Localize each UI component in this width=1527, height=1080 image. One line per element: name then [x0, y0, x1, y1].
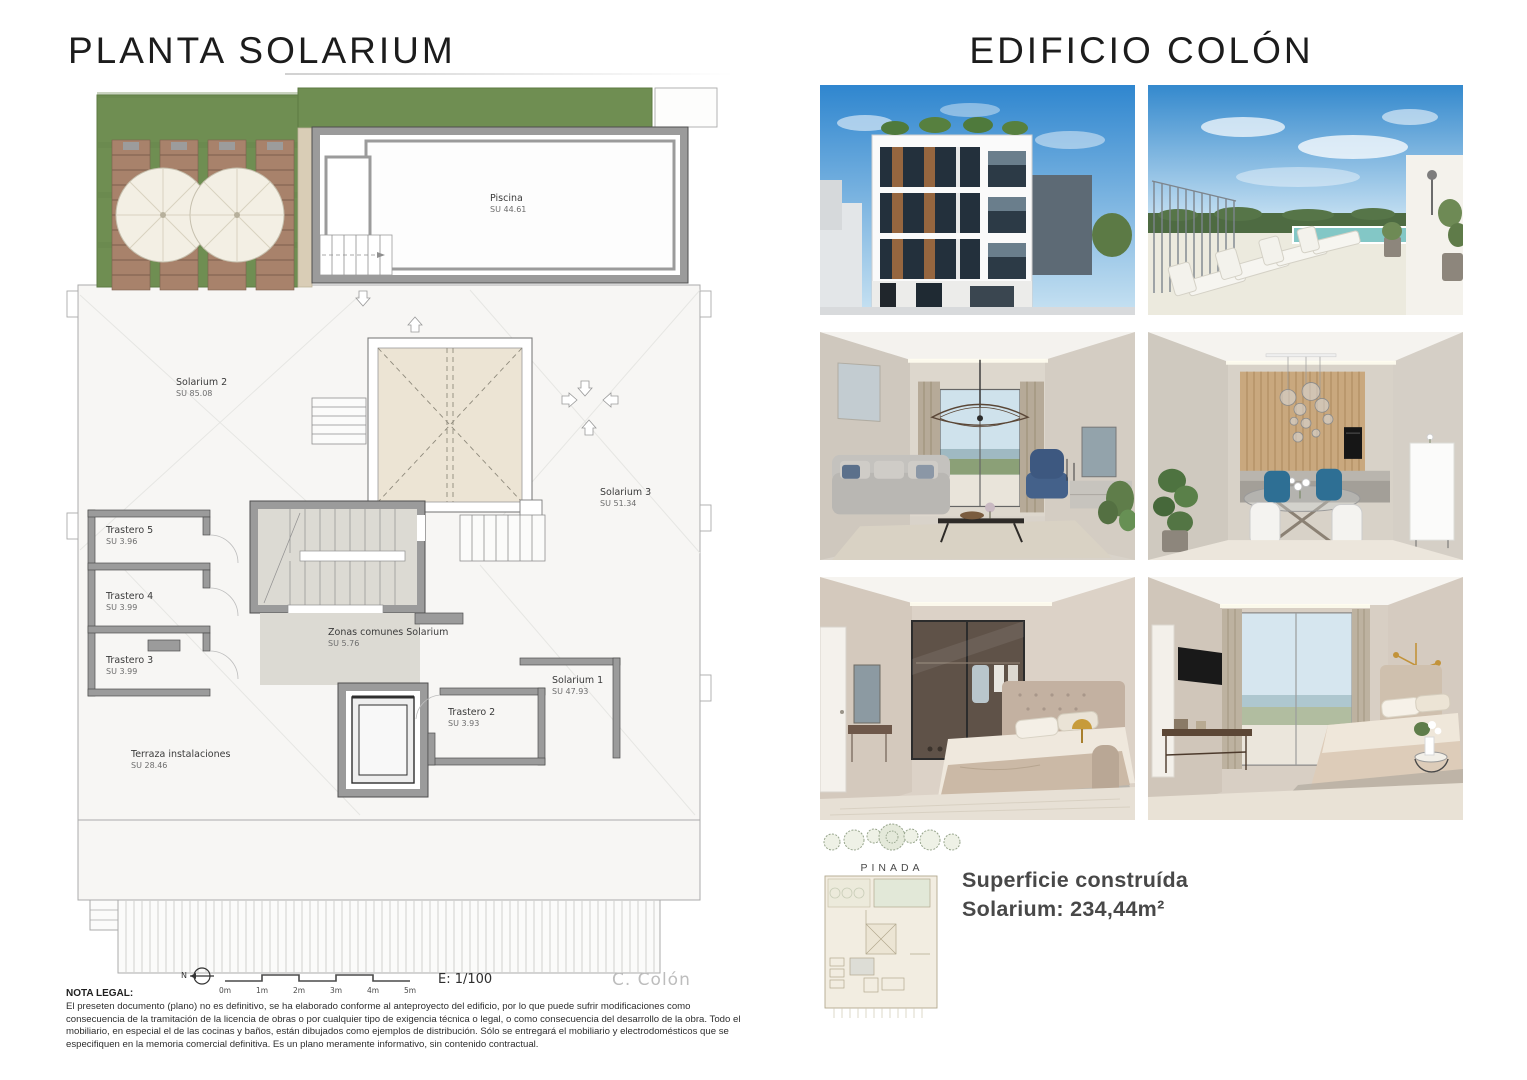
room-label-trastero-3: Trastero 3SU 3.99	[106, 655, 153, 677]
room-label-solarium-3: Solarium 3SU 51.34	[600, 487, 651, 509]
common-zone-floor	[260, 613, 420, 685]
render-rooftop-pool-terrace	[1148, 85, 1463, 315]
floor-plan: PiscinaSU 44.61 Solarium 2SU 85.08 Solar…	[60, 85, 720, 990]
pinada-trees-ornament	[816, 820, 968, 856]
title-underline	[285, 73, 735, 75]
room-label-trastero-5: Trastero 5SU 3.96	[106, 525, 153, 547]
pool-stairs	[320, 235, 392, 275]
side-stair-left	[312, 398, 366, 444]
render-dining-kitchen	[1148, 332, 1463, 560]
page-title-left: PLANTA SOLARIUM	[68, 30, 456, 72]
page-title-right: EDIFICIO COLÓN	[820, 30, 1463, 72]
elevator-shaft	[338, 683, 428, 797]
render-gallery	[820, 85, 1463, 820]
render-bedroom-dressing	[820, 577, 1135, 820]
room-label-piscina: PiscinaSU 44.61	[490, 193, 526, 215]
scale-bar-profile	[225, 975, 410, 981]
room-label-solarium-1: Solarium 1SU 47.93	[552, 675, 603, 697]
deck-strip	[298, 128, 312, 287]
room-label-trastero-2: Trastero 2SU 3.93	[448, 707, 495, 729]
legal-note-title: NOTA LEGAL:	[66, 988, 742, 999]
brochure-page: PLANTA SOLARIUM EDIFICIO COLÓN	[0, 0, 1527, 1080]
scale-ratio: E: 1/100	[438, 972, 492, 987]
legal-note-body: El preseten documento (plano) no es defi…	[66, 1001, 742, 1052]
room-label-solarium-2: Solarium 2SU 85.08	[176, 377, 227, 399]
built-surface-summary: Superficie construída Solarium: 234,44m²	[962, 866, 1188, 924]
render-living-room	[820, 332, 1135, 560]
plan-author: C. Colón	[612, 970, 691, 990]
summary-line-2: Solarium: 234,44m²	[962, 895, 1188, 924]
key-plan-thumbnail	[820, 868, 942, 1020]
side-stair-right	[460, 515, 545, 561]
brand-block: PINADA	[816, 820, 968, 874]
room-label-trastero-4: Trastero 4SU 3.99	[106, 591, 153, 613]
room-label-zonas-comunes: Zonas comunes SolariumSU 5.76	[328, 627, 448, 649]
skylight	[368, 338, 542, 522]
room-label-terraza-instalaciones: Terraza instalacionesSU 28.46	[131, 749, 230, 771]
floor-plan-drawing	[60, 85, 720, 990]
svg-text:N: N	[181, 971, 187, 980]
render-bedroom-views	[1148, 577, 1463, 820]
lower-terrace-band	[78, 820, 700, 900]
legal-note: NOTA LEGAL: El preseten documento (plano…	[66, 988, 742, 1052]
summary-line-1: Superficie construída	[962, 866, 1188, 895]
stair-core	[250, 501, 425, 614]
north-arrow-icon: N	[181, 968, 214, 984]
render-building-facade	[820, 85, 1135, 315]
